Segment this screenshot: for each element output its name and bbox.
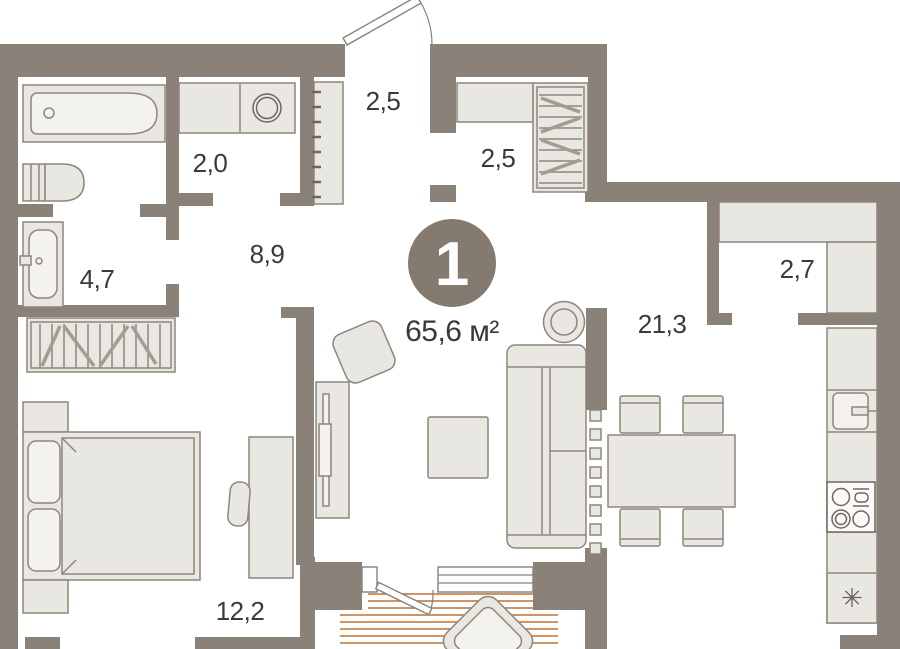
shelf <box>457 83 533 122</box>
bed <box>23 432 200 580</box>
room-label-bathroom: 4,7 <box>80 264 115 294</box>
dining-set <box>608 396 735 546</box>
bathroom-fixtures <box>23 85 165 201</box>
toilet <box>23 164 84 201</box>
room-label-corridor: 8,9 <box>250 239 285 269</box>
room-label-entry: 2,5 <box>366 86 401 116</box>
pouf <box>330 318 398 386</box>
dining-chair <box>620 509 660 546</box>
room-label-wardrobe: 2,5 <box>481 143 516 173</box>
floor-lamp <box>544 302 585 343</box>
apartment-badge: 1 65,6 м² <box>405 219 499 348</box>
desk <box>249 437 293 578</box>
sofa-cushions <box>590 410 601 554</box>
dining-table <box>608 435 735 507</box>
coat-rack <box>312 82 343 204</box>
washbasin <box>20 222 63 307</box>
desk-chair <box>227 481 251 527</box>
room-label-kitchen: 21,3 <box>638 309 687 339</box>
dining-chair <box>620 396 660 433</box>
pillow <box>28 441 60 503</box>
apartment-number: 1 <box>435 230 469 299</box>
dining-chair <box>683 509 723 546</box>
dining-chair <box>683 396 723 433</box>
hall-wardrobe <box>27 318 175 372</box>
room-label-laundry: 2,0 <box>193 148 228 178</box>
laundry-counter <box>179 83 295 133</box>
wardrobe-room-fixtures <box>457 83 588 192</box>
partition-wall <box>586 308 607 410</box>
entrance-door <box>343 0 432 45</box>
stove <box>827 482 875 532</box>
pillow <box>28 509 60 571</box>
nightstand <box>23 580 68 613</box>
tv-unit <box>316 382 349 518</box>
balcony <box>340 567 558 649</box>
room-label-bedroom: 12,2 <box>216 596 265 626</box>
sofa <box>507 345 586 548</box>
nightstand <box>23 402 68 432</box>
total-area-label: 65,6 м² <box>405 315 499 348</box>
balcony-window <box>438 567 533 592</box>
fridge: ✳ <box>827 573 877 623</box>
kitchen: ✳ <box>827 328 877 623</box>
floor-plan: ✳ 2,0 2,5 2,5 <box>0 0 900 649</box>
closet <box>533 83 588 192</box>
fridge-icon: ✳ <box>841 583 863 613</box>
room-label-loggia: 2,7 <box>780 254 815 284</box>
coffee-table <box>428 417 488 478</box>
bedroom-furniture <box>23 402 293 613</box>
bathtub <box>23 85 165 142</box>
